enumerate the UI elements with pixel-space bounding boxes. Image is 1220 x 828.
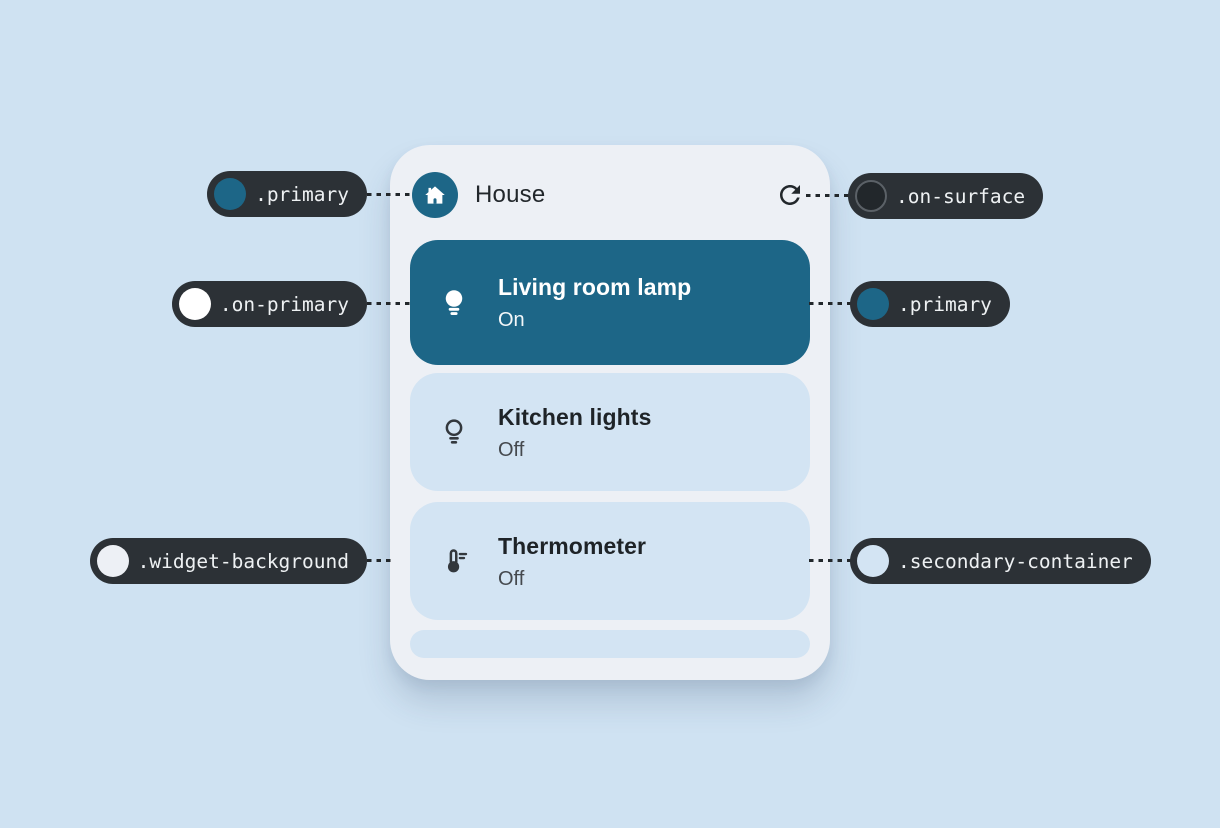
callout-label: .primary: [255, 183, 349, 206]
callout-widget-background: .widget-background: [90, 538, 367, 584]
callout-label: .secondary-container: [898, 550, 1133, 573]
connector-lamp-card-to-primary: [809, 302, 852, 305]
connector-thermo-card-to-secondary: [809, 559, 852, 562]
callout-label: .primary: [898, 293, 992, 316]
color-swatch-on-primary: [179, 288, 211, 320]
callout-primary-left: .primary: [207, 171, 367, 217]
device-name: Thermometer: [498, 532, 646, 560]
callout-label: .on-surface: [896, 185, 1025, 208]
connector-on-primary-to-lamp-card: [367, 302, 412, 305]
thermometer-icon: [438, 546, 470, 576]
device-name: Kitchen lights: [498, 403, 651, 431]
device-card-kitchen-lights[interactable]: Kitchen lights Off: [410, 373, 810, 491]
device-card-thermometer[interactable]: Thermometer Off: [410, 502, 810, 620]
callout-on-surface: .on-surface: [848, 173, 1043, 219]
home-icon: [412, 172, 458, 218]
device-status: Off: [498, 438, 651, 462]
annotation-figure: House Living room lamp On: [0, 0, 1220, 828]
device-text: Thermometer Off: [498, 532, 646, 591]
color-swatch-secondary-container: [857, 545, 889, 577]
smart-home-widget: House Living room lamp On: [390, 145, 830, 680]
callout-secondary-container: .secondary-container: [850, 538, 1151, 584]
lightbulb-filled-icon: [438, 288, 470, 318]
widget-title: House: [475, 181, 545, 209]
color-swatch-widget-background: [97, 545, 129, 577]
callout-primary-right: .primary: [850, 281, 1010, 327]
color-swatch-on-surface: [855, 180, 887, 212]
callout-on-primary: .on-primary: [172, 281, 367, 327]
widget-header: House: [412, 172, 806, 218]
color-swatch-primary: [857, 288, 889, 320]
device-text: Kitchen lights Off: [498, 403, 651, 462]
device-name: Living room lamp: [498, 273, 691, 301]
connector-widget-background-to-widget: [367, 559, 392, 562]
callout-label: .on-primary: [220, 293, 349, 316]
device-text: Living room lamp On: [498, 273, 691, 332]
connector-primary-to-home-icon: [367, 193, 414, 196]
refresh-icon: [775, 180, 805, 210]
lightbulb-outline-icon: [438, 417, 470, 447]
connector-refresh-to-on-surface: [806, 194, 850, 197]
device-status: On: [498, 308, 691, 332]
clipped-list-item: [410, 630, 810, 658]
refresh-button[interactable]: [774, 179, 806, 211]
device-status: Off: [498, 567, 646, 591]
callout-label: .widget-background: [138, 550, 349, 573]
device-card-living-room-lamp[interactable]: Living room lamp On: [410, 240, 810, 365]
color-swatch-primary: [214, 178, 246, 210]
